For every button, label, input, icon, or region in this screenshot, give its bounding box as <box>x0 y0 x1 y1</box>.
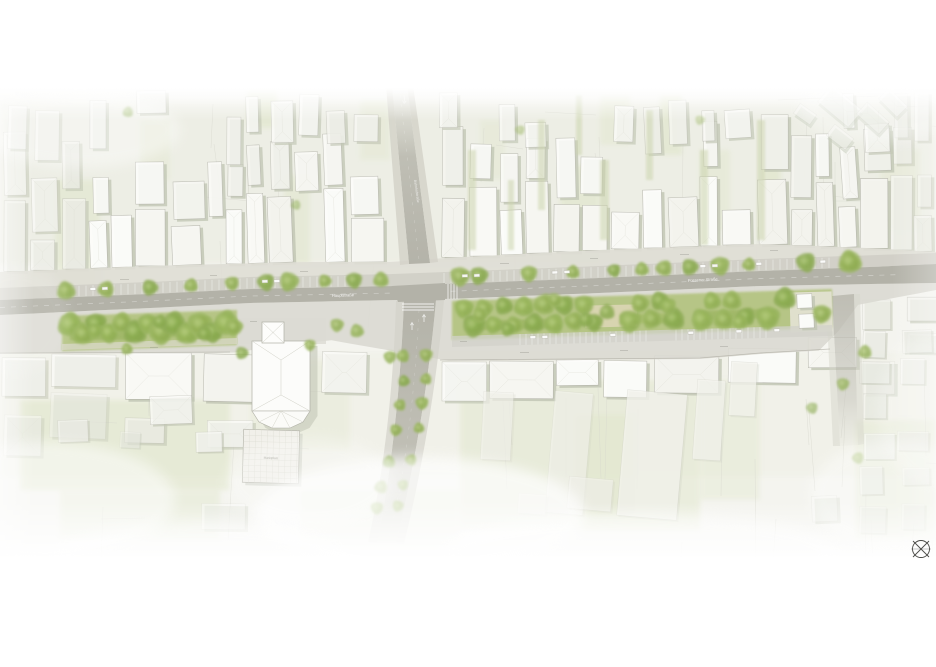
svg-text:Hauptstraße: Hauptstraße <box>332 292 355 298</box>
